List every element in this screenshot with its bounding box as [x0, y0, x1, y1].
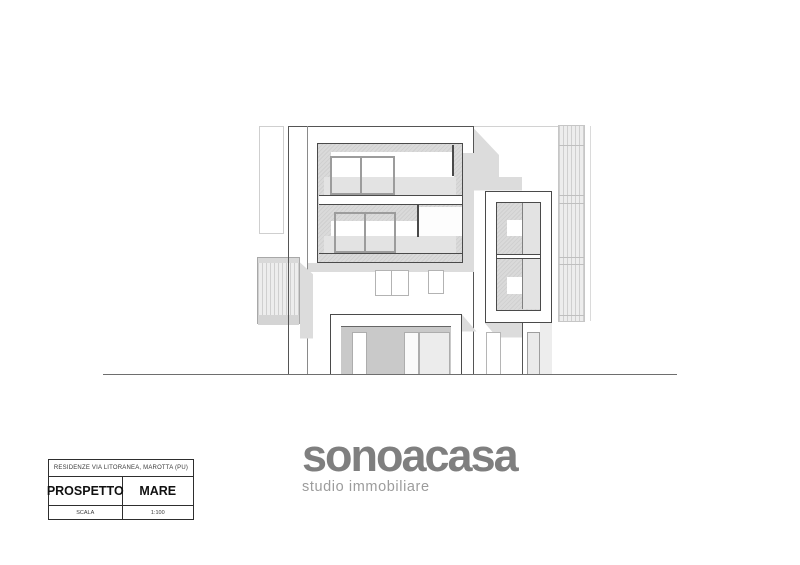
window-mullion — [364, 214, 366, 251]
brand-name: sonoacasa — [302, 434, 562, 478]
tower-window-inner — [496, 202, 542, 311]
lower-window-frame — [334, 212, 396, 253]
balcony-parapet-band — [319, 195, 463, 206]
window-mullion — [391, 271, 393, 295]
louver-bottom-rail — [258, 315, 299, 325]
lower-partition-post — [417, 205, 419, 237]
title-block: RESIDENZE VIA LITORANEA, MAROTTA (PU) PR… — [48, 459, 194, 520]
window-base-right — [527, 332, 541, 375]
tower-base-line — [522, 323, 523, 375]
louver-divider — [559, 145, 585, 146]
shadow-right-of-balcony-box — [463, 153, 474, 272]
window-mullion — [360, 158, 362, 194]
facade-left-edge-line — [288, 126, 289, 375]
ground-line — [103, 374, 677, 375]
louver-screen-left — [257, 257, 300, 324]
background-edge-line — [590, 126, 591, 321]
brand-tagline: studio immobiliare — [302, 479, 562, 495]
window-single-small — [428, 270, 444, 294]
upper-window-frame — [330, 156, 395, 196]
balcony-box — [317, 143, 463, 264]
stair-tower-box — [485, 191, 552, 323]
elevation-drawing — [0, 0, 800, 430]
project-name: RESIDENZE VIA LITORANEA, MAROTTA (PU) — [49, 460, 193, 477]
louver-divider — [559, 203, 585, 204]
louver-divider — [559, 257, 585, 258]
louver-divider — [559, 195, 585, 196]
tower-notch-upper — [507, 220, 523, 237]
louver-divider — [559, 315, 585, 316]
roof-line-right — [474, 126, 558, 127]
scale-label: SCALA — [49, 506, 123, 519]
upper-corner-post — [452, 145, 454, 177]
drawing-sheet: RESIDENZE VIA LITORANEA, MAROTTA (PU) PR… — [0, 0, 800, 565]
entrance-glass-door-panel-1 — [404, 332, 419, 375]
tower-notch-lower — [507, 277, 523, 294]
window-base-left — [486, 332, 501, 375]
base-strip-right — [540, 323, 552, 375]
view-name: MARE — [123, 477, 194, 505]
shadow-top-right — [474, 128, 523, 191]
brand-logo: sonoacasa studio immobiliare — [302, 434, 562, 495]
background-volume-left — [259, 126, 284, 234]
box-inner-bottom-line — [319, 253, 463, 254]
shadow-left-louver — [300, 262, 314, 339]
entrance-door-left — [352, 332, 368, 375]
entrance-glass-door-panel-2 — [419, 332, 451, 375]
window-pair-small — [375, 270, 409, 296]
louver-top-rail — [258, 258, 299, 263]
view-label: PROSPETTO — [49, 477, 123, 505]
scale-value: 1:100 — [123, 506, 194, 519]
louver-divider — [559, 264, 585, 265]
lower-glazing-right — [419, 207, 462, 236]
tower-mid-band — [497, 254, 540, 260]
louver-screen-right — [558, 125, 586, 322]
